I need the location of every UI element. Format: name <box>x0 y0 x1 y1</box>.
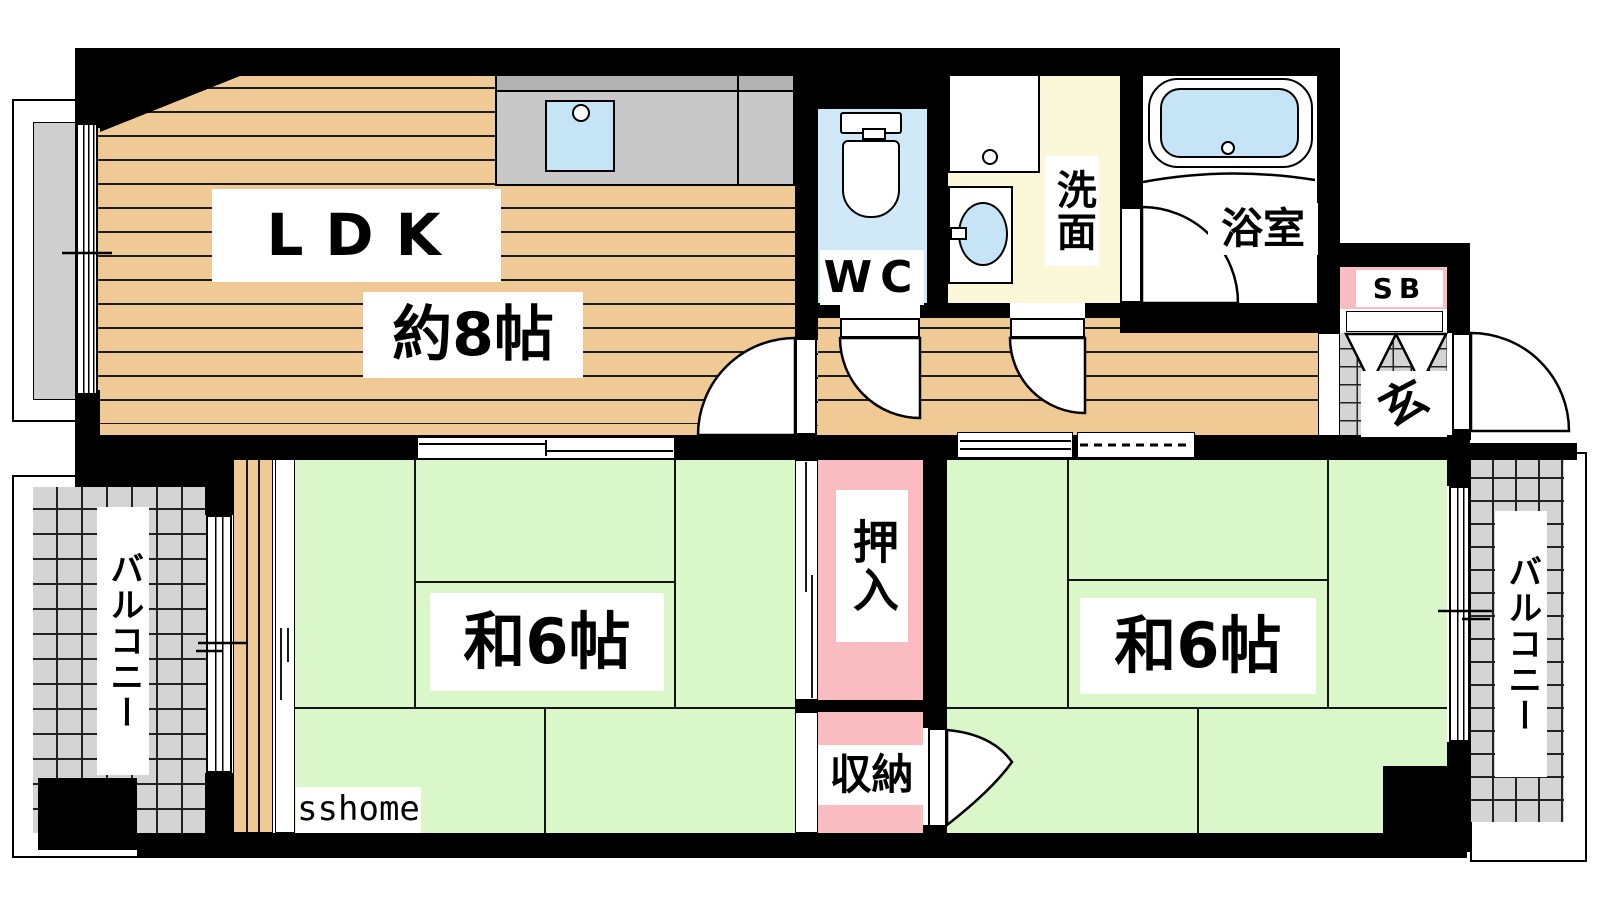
bath-text: 浴室 <box>1221 207 1305 251</box>
storage-door-swing <box>947 730 1012 825</box>
entrance-text: 玄 <box>1372 372 1435 436</box>
tatami-left-text: 和6帖 <box>463 610 630 674</box>
shoe-box-label: SB <box>1356 270 1443 307</box>
window-tick-left <box>196 643 248 651</box>
shoe-box-text: SB <box>1373 274 1427 303</box>
fusuma-track-marks <box>806 462 812 698</box>
balcony-right-text: バルコニー <box>1503 554 1538 734</box>
watermark: sshome <box>296 787 421 833</box>
shoji-track-marks <box>281 628 288 700</box>
floor-plan: LDK 約8帖 和6帖 和6帖 WC 洗面 浴室 SB 玄 押入 収納 バルコニ… <box>0 0 1600 900</box>
ldk-label: LDK <box>212 189 501 282</box>
ldk-door-swing <box>698 338 795 435</box>
sliding-door-lines-right <box>960 441 1071 449</box>
corner-bevel <box>100 76 240 132</box>
closet-label: 押入 <box>836 490 908 642</box>
washroom-label: 洗面 <box>1045 156 1099 266</box>
wc-text: WC <box>824 255 921 301</box>
washroom-text: 洗面 <box>1051 169 1093 253</box>
balcony-right-label: バルコニー <box>1495 511 1547 777</box>
window-tick-right <box>1438 611 1492 619</box>
wc-label: WC <box>820 250 924 305</box>
ldk-size-text: 約8帖 <box>392 304 554 366</box>
ldk-label-text: LDK <box>266 205 462 265</box>
storage-text: 収納 <box>829 753 913 797</box>
closet-text: 押入 <box>848 518 896 614</box>
ldk-size-label: 約8帖 <box>363 292 583 378</box>
entry-door-swing <box>1471 333 1569 431</box>
bath-label: 浴室 <box>1208 203 1318 255</box>
entrance-label: 玄 <box>1361 371 1447 437</box>
balcony-left-label: バルコニー <box>97 507 149 775</box>
plan-overlay <box>0 0 1600 900</box>
tatami-left-label: 和6帖 <box>430 593 664 691</box>
wc-door-swing <box>840 338 920 418</box>
tatami-right-text: 和6帖 <box>1114 614 1281 678</box>
storage-label: 収納 <box>818 745 925 805</box>
watermark-text: sshome <box>297 792 420 827</box>
washroom-door-swing <box>1010 338 1085 413</box>
sliding-door-lines-left <box>419 440 673 456</box>
bathtub-edge-curve <box>1143 173 1315 182</box>
balcony-left-text: バルコニー <box>105 551 140 731</box>
tatami-right-label: 和6帖 <box>1080 598 1316 694</box>
